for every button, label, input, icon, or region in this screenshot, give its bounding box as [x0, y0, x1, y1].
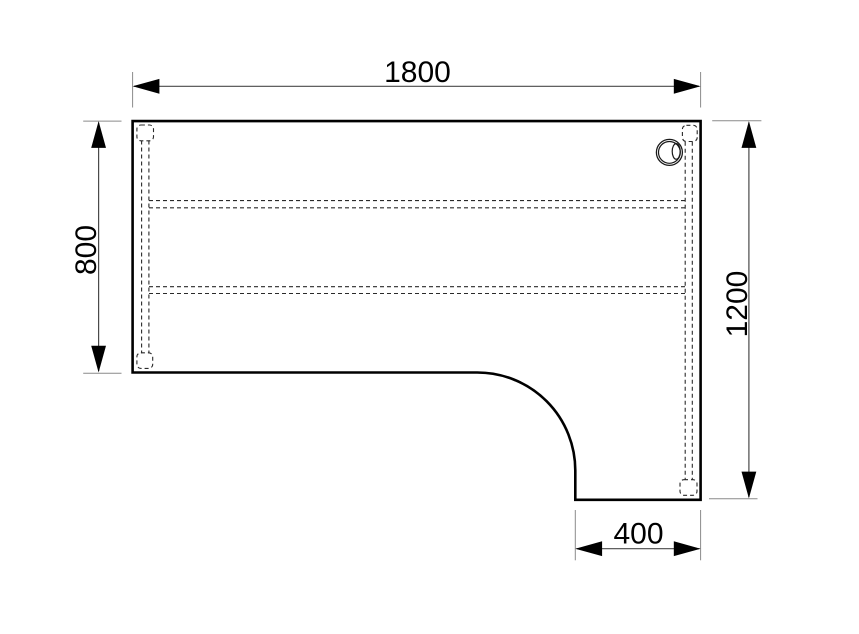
svg-text:400: 400 — [613, 518, 663, 551]
svg-text:1200: 1200 — [721, 271, 754, 338]
svg-text:800: 800 — [70, 225, 103, 275]
svg-text:1800: 1800 — [384, 56, 451, 89]
